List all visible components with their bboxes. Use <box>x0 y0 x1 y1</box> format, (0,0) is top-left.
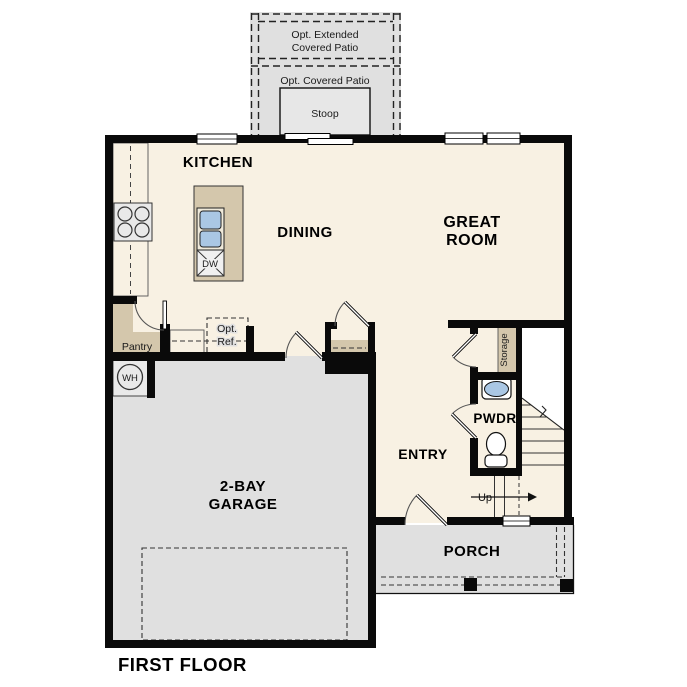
wall-segment <box>516 328 522 476</box>
water-heater-closet: WH <box>113 360 150 396</box>
porch-post <box>464 578 477 591</box>
wh-label: WH <box>122 373 138 384</box>
wall-segment <box>246 326 254 354</box>
sliding-door-panel <box>308 139 353 145</box>
wall-segment <box>105 296 137 304</box>
first-floor-title: FIRST FLOOR <box>118 654 247 675</box>
wall-segment <box>470 320 478 334</box>
sink-basin <box>200 211 221 229</box>
wall-segment <box>530 517 574 525</box>
entry-label: ENTRY <box>398 446 448 462</box>
pantry-label: Pantry <box>122 341 153 353</box>
wall-segment <box>105 352 285 361</box>
kitchen-label: KITCHEN <box>183 154 253 171</box>
wall-segment <box>470 468 522 476</box>
great-room-label2: ROOM <box>446 232 498 249</box>
extended-patio-label: Opt. Extended <box>291 29 358 41</box>
sink-bowl <box>485 382 509 397</box>
garage-label2: GARAGE <box>209 496 278 513</box>
burner-icon <box>118 207 132 221</box>
pwdr-label: PWDR <box>473 411 516 426</box>
dining-label: DINING <box>277 224 333 241</box>
wall-segment <box>105 640 376 648</box>
wall-segment <box>147 358 155 398</box>
extended-patio-label2: Covered Patio <box>292 42 359 54</box>
stoop-label: Stoop <box>311 108 339 120</box>
wall-segment <box>368 517 405 525</box>
wall-segment <box>368 322 375 362</box>
up-label: Up <box>478 492 492 504</box>
patio-area: Opt. Extended Covered Patio Opt. Covered… <box>250 12 401 135</box>
wall-segment <box>105 135 113 648</box>
storage-label: Storage <box>499 333 510 366</box>
toilet-bowl <box>487 433 506 456</box>
wall-segment <box>478 372 522 380</box>
burner-icon <box>118 223 132 237</box>
floor-plan: Opt. Extended Covered Patio Opt. Covered… <box>0 0 687 687</box>
wall-segment <box>447 517 503 525</box>
burner-icon <box>135 207 149 221</box>
great-room-label: GREAT <box>443 214 500 231</box>
opt-ref-label2: Ref. <box>217 336 236 348</box>
wall-segment <box>448 320 572 328</box>
toilet-tank <box>485 455 507 467</box>
wall-segment <box>325 361 375 374</box>
opt-ref-label: Opt. <box>217 323 237 335</box>
covered-patio-label: Opt. Covered Patio <box>280 75 369 87</box>
burner-icon <box>135 223 149 237</box>
wall-segment <box>368 352 376 648</box>
porch-post <box>560 579 573 592</box>
porch-label: PORCH <box>444 543 501 560</box>
dishwasher-label: DW <box>202 259 218 270</box>
garage-label: 2-BAY <box>220 478 266 495</box>
wall-segment <box>470 367 478 404</box>
storage-area: Storage <box>498 328 516 373</box>
wall-segment <box>564 135 572 525</box>
door-leaf <box>163 301 167 329</box>
sink-basin <box>200 231 221 247</box>
